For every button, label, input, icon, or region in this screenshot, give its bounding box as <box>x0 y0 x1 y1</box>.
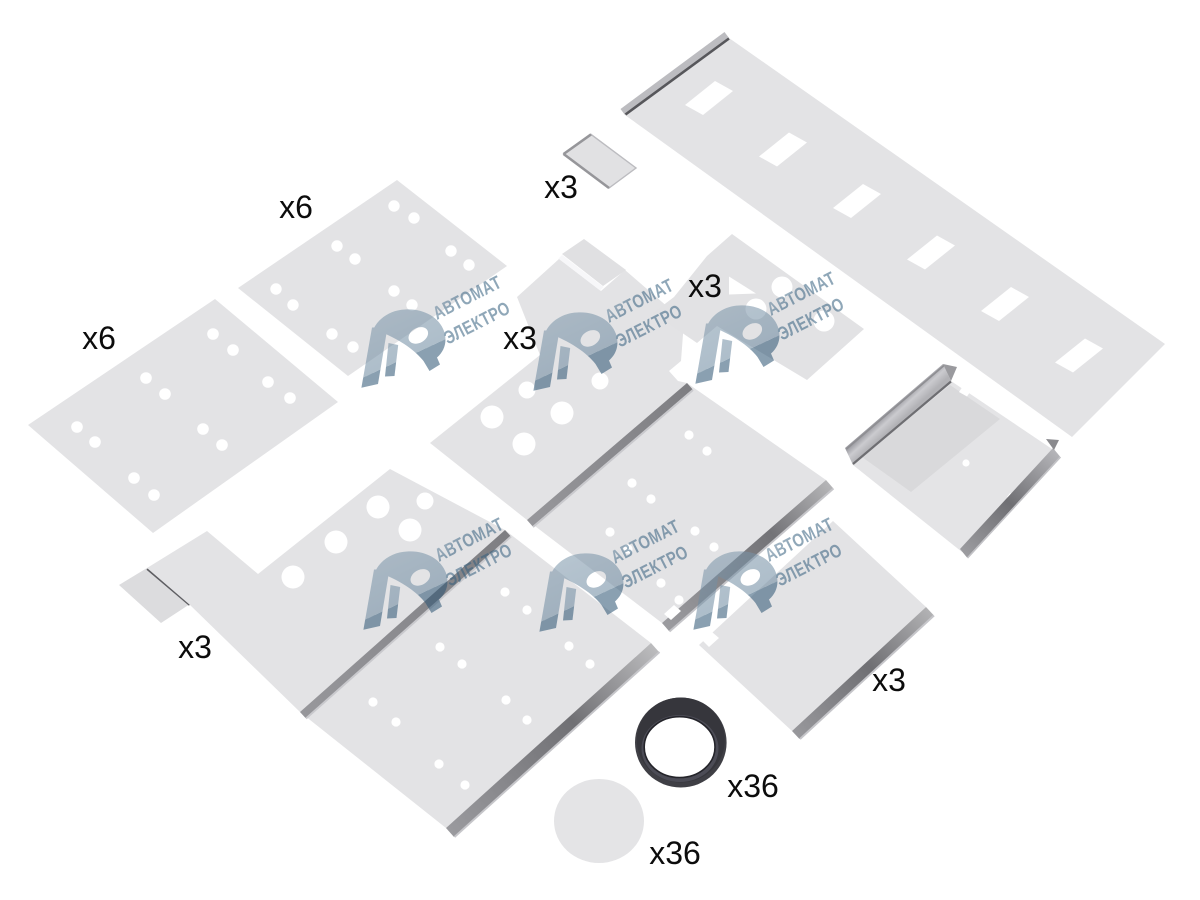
svg-text:x3: x3 <box>544 169 578 205</box>
svg-text:x3: x3 <box>872 662 906 698</box>
svg-text:x6: x6 <box>82 320 116 356</box>
svg-text:x3: x3 <box>178 629 212 665</box>
svg-text:x36: x36 <box>649 835 701 871</box>
svg-text:x3: x3 <box>688 268 722 304</box>
svg-text:x3: x3 <box>503 320 537 356</box>
svg-text:x36: x36 <box>727 768 779 804</box>
svg-text:x6: x6 <box>279 189 313 225</box>
